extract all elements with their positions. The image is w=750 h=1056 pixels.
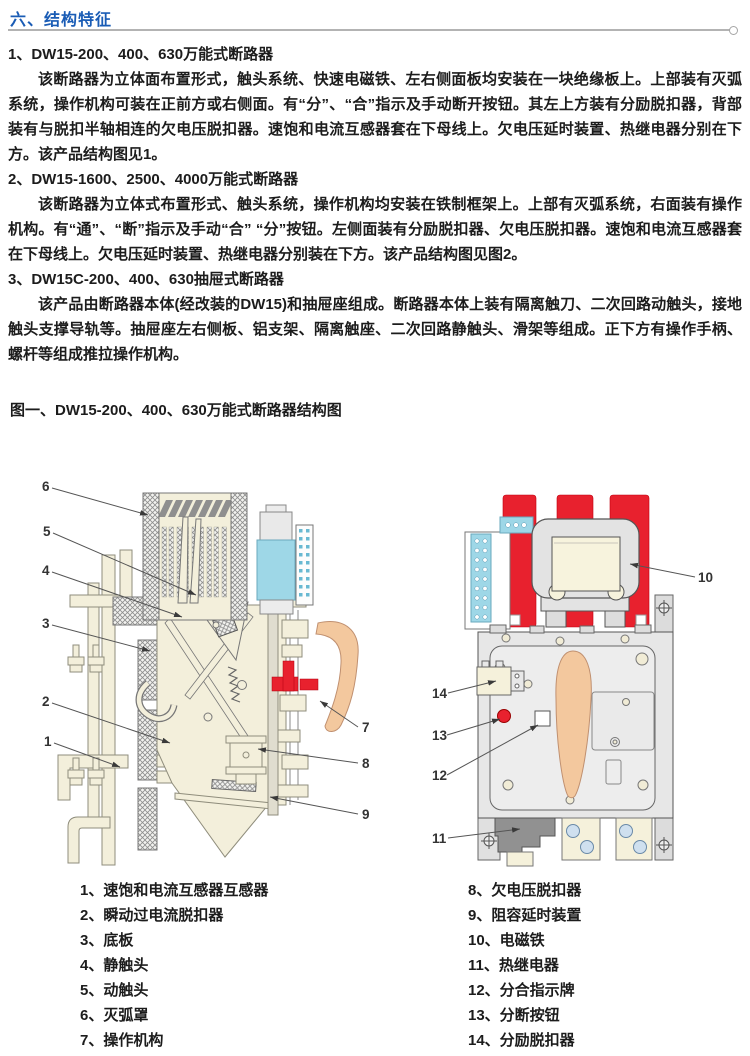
section-1-heading: 1、DW15-200、400、630万能式断路器 [8,42,742,67]
breaking-button [498,710,511,723]
callout-12: 12 [432,768,447,783]
callout-4: 4 [42,563,50,578]
legend-item-6: 6、灭弧罩 [80,1003,268,1028]
callout-11: 11 [432,831,447,846]
section-1-body: 该断路器为立体面布置形式，触头系统、快速电磁铁、左右侧面板均安装在一块绝缘板上。… [8,67,742,167]
electromagnet [532,519,639,627]
callout-8: 8 [362,756,370,771]
legend-item-2: 2、瞬动过电流脱扣器 [80,903,268,928]
legend-item-3: 3、底板 [80,928,268,953]
callout-6: 6 [42,479,50,494]
left-diagram-side-view: 6 5 4 3 2 1 7 8 9 [20,455,380,875]
callout-10: 10 [698,570,713,585]
terminal-strip [296,525,313,605]
arc-chute [143,493,247,620]
legend-item-14: 14、分励脱扣器 [468,1028,581,1053]
body-text: 1、DW15-200、400、630万能式断路器 该断路器为立体面布置形式，触头… [8,42,742,367]
legend-item-9: 9、阻容延时装置 [468,903,581,928]
callout-14: 14 [432,686,448,701]
legend-item-1: 1、速饱和电流互感器互感器 [80,878,268,903]
document-page: 六、结构特征 1、DW15-200、400、630万能式断路器 该断路器为立体面… [0,0,750,1056]
callout-9: 9 [362,807,370,822]
legend-item-11: 11、热继电器 [468,953,581,978]
section-title: 六、结构特征 [10,6,112,30]
section-2-heading: 2、DW15-1600、2500、4000万能式断路器 [8,167,742,192]
legend-item-10: 10、电磁铁 [468,928,581,953]
right-diagram-front-view: 10 14 13 12 11 [410,455,740,875]
section-1: 1、DW15-200、400、630万能式断路器 该断路器为立体面布置形式，触头… [8,42,742,167]
legend-item-13: 13、分断按钮 [468,1003,581,1028]
figure-title: 图一、DW15-200、400、630万能式断路器结构图 [10,399,342,420]
terminal-plates [562,818,652,860]
legend-item-4: 4、静触头 [80,953,268,978]
legend-right: 8、欠电压脱扣器 9、阻容延时装置 10、电磁铁 11、热继电器 12、分合指示… [468,878,581,1053]
section-3-body: 该产品由断路器本体(经改装的DW15)和抽屉座组成。断路器本体上装有隔离触刀、二… [8,292,742,367]
callout-5: 5 [43,524,51,539]
legend-item-12: 12、分合指示牌 [468,978,581,1003]
on-off-indicator-plate [535,711,550,726]
callout-13: 13 [432,728,448,743]
thermal-relay [495,818,555,866]
legend-item-8: 8、欠电压脱扣器 [468,878,581,903]
callout-7: 7 [362,720,370,735]
rule-end-dot [729,26,738,35]
legend-left: 1、速饱和电流互感器互感器 2、瞬动过电流脱扣器 3、底板 4、静触头 5、动触… [80,878,268,1053]
callout-2: 2 [42,694,50,709]
legend-item-7: 7、操作机构 [80,1028,268,1053]
section-2-body: 该断路器为立体式布置形式、触头系统，操作机构均安装在铁制框架上。上部有灭弧系统，… [8,192,742,267]
shunt-release-coil [257,505,295,614]
callout-1: 1 [44,734,52,749]
breaker-body [157,605,268,857]
section-3-heading: 3、DW15C-200、400、630抽屉式断路器 [8,267,742,292]
legend-item-5: 5、动触头 [80,978,268,1003]
section-3: 3、DW15C-200、400、630抽屉式断路器 该产品由断路器本体(经改装的… [8,267,742,367]
header-rule [8,29,730,31]
section-2: 2、DW15-1600、2500、4000万能式断路器 该断路器为立体式布置形式… [8,167,742,267]
callout-3: 3 [42,616,50,631]
handle-icon [316,622,358,732]
